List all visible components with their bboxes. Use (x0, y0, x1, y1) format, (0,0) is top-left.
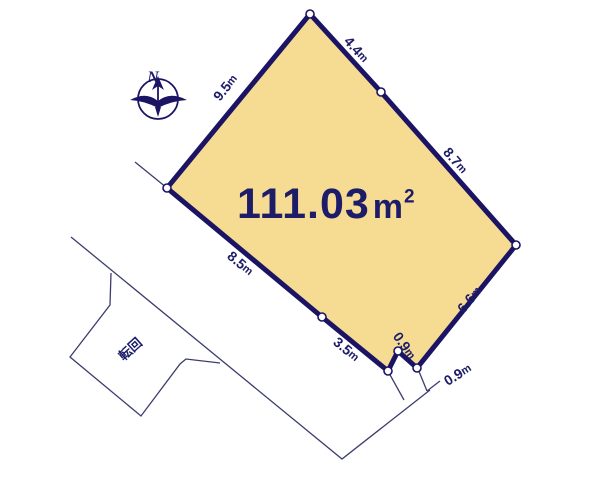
north-compass-icon: N (130, 69, 187, 119)
vertex-marker (413, 364, 421, 372)
compass-north-letter: N (146, 69, 160, 86)
area-label: 111.03m2 (237, 183, 416, 226)
diagram-drawing: N 9.5m4.4m8.7m6.6m8.5m3.5m0.9m0.9m転回 (0, 0, 600, 482)
vertex-marker (318, 313, 326, 321)
vertex-marker (512, 241, 520, 249)
compass-tail (155, 107, 161, 117)
plot-diagram: N 9.5m4.4m8.7m6.6m8.5m3.5m0.9m0.9m転回 111… (0, 0, 600, 482)
dimension-label: 0.9m (441, 359, 474, 388)
vertex-marker (163, 184, 171, 192)
leader-line-09-right (418, 369, 427, 391)
neighbor-building-outline (70, 273, 220, 416)
area-unit-superscript: 2 (404, 187, 416, 208)
leader-line-09-label (427, 381, 440, 391)
dimension-label: 9.5m (210, 71, 241, 104)
vertex-marker (377, 88, 385, 96)
area-value: 111.03 (237, 180, 370, 228)
vertex-marker (384, 367, 392, 375)
boundary-extension-line (135, 162, 167, 188)
vertex-marker (306, 10, 314, 18)
area-unit: m (373, 188, 404, 226)
annotation-label: 転回 (116, 335, 145, 364)
leader-line-09-bottom (389, 373, 404, 400)
